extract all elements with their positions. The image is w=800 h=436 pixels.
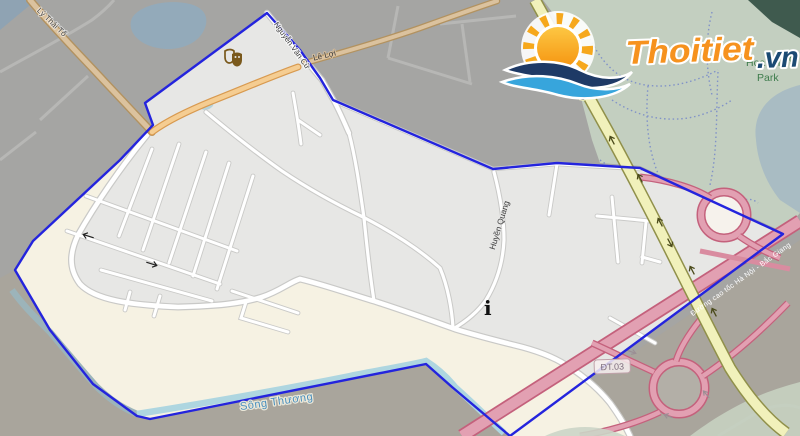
logo-tld-text: .vn (756, 42, 799, 75)
map-screenshot: i Lý Thái Tổ Nguyễn Văn Cừ Lê Lợi Huyền … (0, 0, 800, 436)
route-badge: ĐT.03 (594, 359, 630, 374)
map-canvas[interactable]: i Lý Thái Tổ Nguyễn Văn Cừ Lê Lợi Huyền … (0, 0, 800, 436)
info-point-icon: i (484, 296, 492, 320)
logo-brand-text: Thoitiet (625, 29, 756, 71)
svg-text:ĐT.03: ĐT.03 (600, 361, 624, 372)
